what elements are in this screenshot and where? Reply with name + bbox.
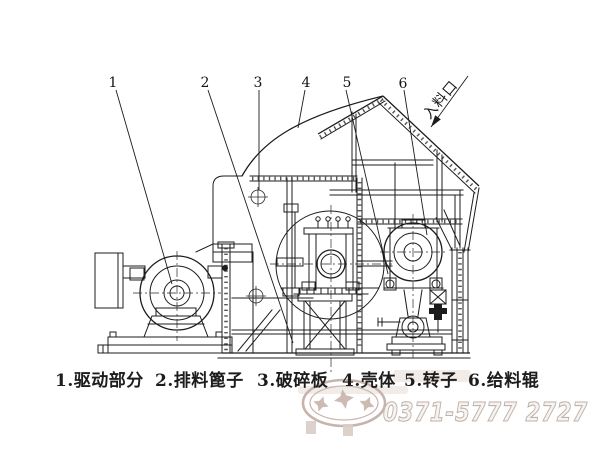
logo-faded-characters	[306, 421, 353, 436]
bolt-dot-icon	[222, 265, 228, 271]
callout-number: 6	[399, 76, 408, 92]
caption-item: 2.排料篦子	[155, 366, 244, 391]
caption-item: 1.驱动部分	[55, 366, 144, 391]
adjusting-bolt-icon	[429, 290, 447, 332]
feed-inlet-label: 入料口	[420, 78, 461, 123]
callout-number: 3	[254, 75, 263, 91]
callout-number: 5	[343, 75, 352, 91]
tension-rod	[277, 204, 303, 296]
legend-caption: 1.驱动部分 2.排料篦子 3.破碎板 4.壳体 5.转子 6.给料辊	[0, 366, 600, 390]
caption-item: 3.破碎板	[257, 366, 328, 391]
support-stand	[296, 294, 354, 355]
feed-inlet-callout: 入料口	[420, 76, 468, 127]
watermark-phone-number: 0371-5777 2727	[383, 398, 588, 428]
caption-item: 6.给料辊	[468, 366, 539, 391]
callout-numbers: 1 2 3 4 5 6	[109, 75, 408, 92]
callout-number: 1	[109, 75, 118, 91]
datum-target-icon	[246, 187, 268, 306]
drive-unit	[95, 251, 232, 353]
caption-item: 4.壳体	[342, 366, 396, 391]
discharge-grate	[281, 288, 379, 294]
bolt-row-icon	[316, 217, 350, 228]
caption-item: 5.转子	[404, 366, 458, 391]
callout-number: 4	[302, 75, 311, 91]
page-background: { "colors": { "line": "#1c1c1c", "waterm…	[0, 0, 600, 450]
feed-roller-assembly	[378, 210, 460, 358]
callout-number: 2	[201, 75, 210, 91]
pulley-icon	[133, 251, 221, 341]
leader-lines	[116, 90, 427, 343]
